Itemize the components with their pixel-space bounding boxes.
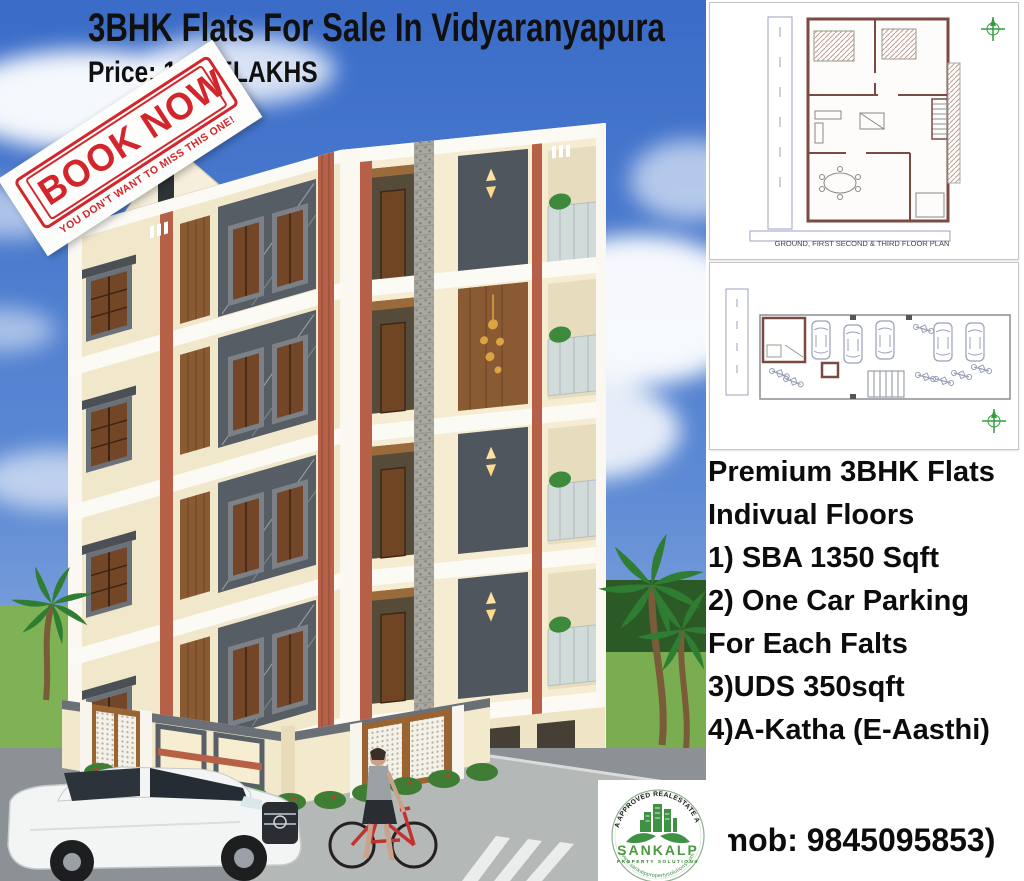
compass-icon <box>982 409 1006 433</box>
real-estate-poster: 3BHK Flats For Sale In Vidyaranyapura Pr… <box>0 0 1024 881</box>
floor-plan-drawing: GROUND, FIRST SECOND & THIRD FLOOR PLAN <box>710 3 1016 257</box>
feature-line: 2) One Car Parking <box>708 580 1024 623</box>
agency-logo: RERA APPROVED REALESTATE AGENT SA <box>598 780 728 881</box>
feature-line: Indivual Floors <box>708 494 1024 537</box>
feature-line: 1) SBA 1350 Sqft <box>708 537 1024 580</box>
contact-mobile: (mob: 9845095853) <box>709 822 995 859</box>
logo-name: SANKALP <box>617 842 699 858</box>
right-column: GROUND, FIRST SECOND & THIRD FLOOR PLAN <box>706 0 1024 881</box>
feature-line: For Each Falts <box>708 623 1024 666</box>
feature-line: 3)UDS 350sqft <box>708 666 1024 709</box>
parking-plan-drawing <box>710 263 1016 447</box>
floor-plan-caption: GROUND, FIRST SECOND & THIRD FLOOR PLAN <box>775 239 950 248</box>
parking-plan-card <box>709 262 1019 450</box>
feature-line: 4)A-Katha (E-Aasthi) <box>708 709 1024 752</box>
feature-line: Premium 3BHK Flats <box>708 451 1024 494</box>
compass-icon <box>981 17 1005 41</box>
floor-plan-card: GROUND, FIRST SECOND & THIRD FLOOR PLAN <box>709 2 1019 260</box>
agency-logo-badge: RERA APPROVED REALESTATE AGENT SA <box>598 780 728 881</box>
poster-title: 3BHK Flats For Sale In Vidyaranyapura <box>88 6 665 51</box>
feature-list: Premium 3BHK Flats Indivual Floors 1) SB… <box>708 451 1024 752</box>
